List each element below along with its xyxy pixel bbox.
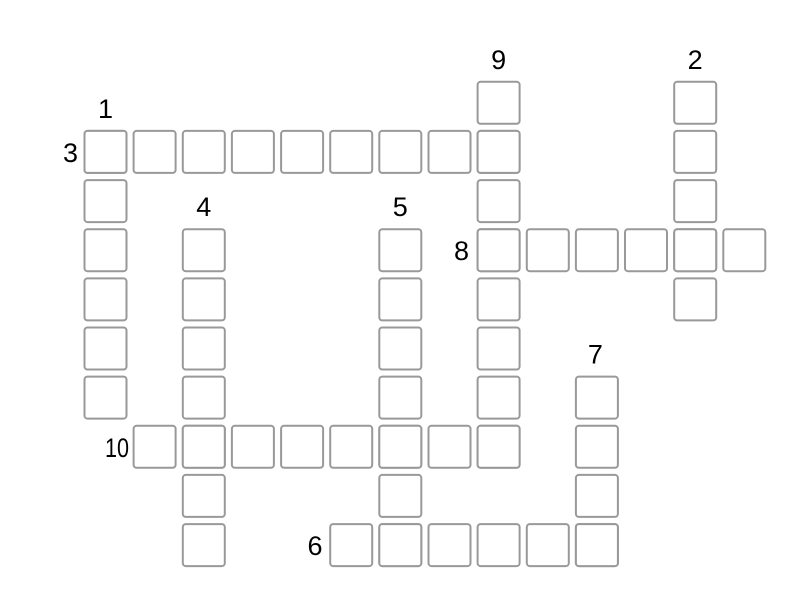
svg-text:2: 2 [688,45,703,75]
svg-text:10: 10 [105,433,129,463]
svg-text:5: 5 [393,192,408,222]
svg-text:7: 7 [588,340,603,370]
svg-text:3: 3 [63,138,78,168]
svg-text:9: 9 [491,45,506,75]
svg-text:8: 8 [454,236,469,266]
svg-text:4: 4 [196,192,211,222]
svg-text:6: 6 [307,531,322,561]
svg-text:1: 1 [98,94,113,124]
